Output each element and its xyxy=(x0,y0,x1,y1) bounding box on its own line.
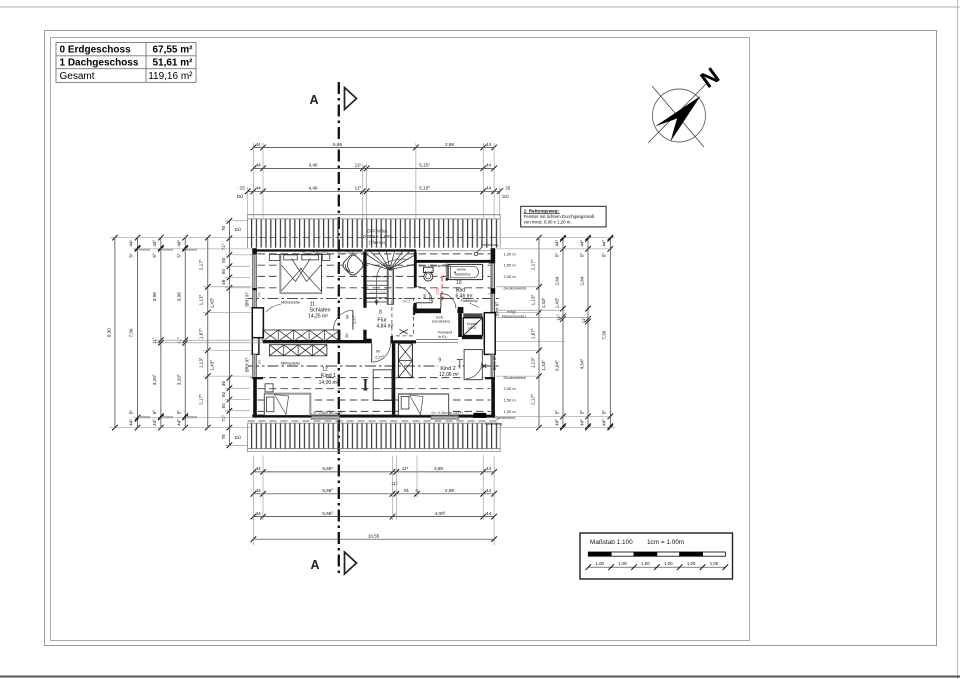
svg-text:44: 44 xyxy=(256,466,262,471)
svg-text:90: 90 xyxy=(376,350,380,354)
svg-text:DÜ: DÜ xyxy=(235,227,241,232)
svg-text:91: 91 xyxy=(404,488,410,493)
svg-text:Vorwand: Vorwand xyxy=(438,331,453,335)
svg-text:Stehhöhe: Stehhöhe xyxy=(454,272,470,276)
svg-text:1,50 m: 1,50 m xyxy=(504,398,517,403)
svg-text:9: 9 xyxy=(438,357,441,363)
svg-text:50: 50 xyxy=(221,403,226,409)
svg-text:A: A xyxy=(309,93,318,107)
svg-text:Maßstab 1:100: Maßstab 1:100 xyxy=(590,539,633,546)
svg-text:44: 44 xyxy=(486,488,492,493)
svg-text:(Thermo): (Thermo) xyxy=(369,240,387,245)
svg-text:Mittelpfette: Mittelpfette xyxy=(281,360,301,365)
svg-text:Fallleitung: Fallleitung xyxy=(481,243,498,247)
svg-text:8,30: 8,30 xyxy=(106,328,111,337)
svg-text:3,89: 3,89 xyxy=(434,466,443,471)
svg-text:Fenster mit lichtem Durchgangs: Fenster mit lichtem Durchgangsmaß xyxy=(524,214,595,219)
svg-text:1cm = 1.00m: 1cm = 1.00m xyxy=(647,539,684,546)
svg-text:50: 50 xyxy=(221,392,226,398)
svg-text:50: 50 xyxy=(221,269,226,275)
svg-text:19/19: 19/19 xyxy=(468,326,477,330)
svg-text:78: 78 xyxy=(221,226,226,232)
svg-text:46: 46 xyxy=(221,279,226,285)
svg-text:44: 44 xyxy=(486,186,492,191)
svg-text:44: 44 xyxy=(256,142,262,147)
svg-text:Gesamt: Gesamt xyxy=(60,71,95,82)
svg-text:8: 8 xyxy=(379,309,382,315)
svg-text:4,40: 4,40 xyxy=(309,186,318,191)
svg-text:2,64: 2,64 xyxy=(554,276,559,285)
svg-text:2,98: 2,98 xyxy=(445,142,454,147)
svg-text:von mind. 0,90 x 1,20 m.: von mind. 0,90 x 1,20 m. xyxy=(524,220,572,225)
svg-text:Kind 1: Kind 1 xyxy=(321,373,336,379)
svg-text:12,06 m²: 12,06 m² xyxy=(439,372,459,378)
svg-text:67,55 m²: 67,55 m² xyxy=(152,45,193,56)
svg-text:44: 44 xyxy=(486,466,492,471)
svg-text:16x17,5/25: 16x17,5/25 xyxy=(370,291,386,295)
svg-text:keine: keine xyxy=(457,268,466,272)
svg-text:50: 50 xyxy=(221,257,226,263)
svg-text:Drm. 1,38m ab OKFF: Drm. 1,38m ab OKFF xyxy=(419,264,451,268)
svg-text:A: A xyxy=(310,558,319,572)
svg-text:7,30: 7,30 xyxy=(129,328,134,337)
svg-text:1,00: 1,00 xyxy=(595,561,604,566)
svg-text:3,98: 3,98 xyxy=(177,292,182,301)
svg-text:1,00: 1,00 xyxy=(687,561,696,566)
svg-text:10: 10 xyxy=(456,280,462,286)
svg-text:2,00 m: 2,00 m xyxy=(504,274,517,279)
svg-text:1,00: 1,00 xyxy=(664,561,673,566)
svg-text:1,00: 1,00 xyxy=(710,561,719,566)
svg-text:2. Rettungsweg:: 2. Rettungsweg: xyxy=(524,208,560,213)
svg-text:3,98: 3,98 xyxy=(152,292,157,301)
svg-text:0,78m x 1,18m: 0,78m x 1,18m xyxy=(363,234,392,239)
svg-text:Deckenknick: Deckenknick xyxy=(504,375,527,380)
svg-text:119,16 m²: 119,16 m² xyxy=(148,71,193,82)
svg-text:in EL.: in EL. xyxy=(438,335,448,339)
svg-text:9x1,2: 9x1,2 xyxy=(403,299,411,303)
svg-text:7,30: 7,30 xyxy=(602,330,607,339)
svg-text:1,00 m: 1,00 m xyxy=(504,409,517,414)
svg-text:4,84 m²: 4,84 m² xyxy=(377,323,394,329)
svg-text:h= -0,36m ab OKRF: h= -0,36m ab OKRF xyxy=(313,411,343,415)
svg-text:h= 2,26m ab OKFF: h= 2,26m ab OKFF xyxy=(302,251,329,255)
svg-text:46: 46 xyxy=(221,381,226,387)
svg-text:- 25: - 25 xyxy=(503,186,511,191)
svg-text:11: 11 xyxy=(310,301,315,307)
svg-text:44: 44 xyxy=(256,511,262,516)
svg-text:2,00: 2,00 xyxy=(436,288,440,295)
svg-text:2,98: 2,98 xyxy=(445,488,454,493)
svg-text:4,40: 4,40 xyxy=(309,163,318,168)
svg-text:14,25 m²: 14,25 m² xyxy=(308,313,328,319)
svg-text:6,69: 6,69 xyxy=(333,142,342,147)
svg-text:1,00: 1,00 xyxy=(618,561,627,566)
svg-text:- 25: - 25 xyxy=(237,186,245,191)
svg-text:44: 44 xyxy=(256,163,262,168)
svg-text:DÜ: DÜ xyxy=(502,194,508,199)
svg-text:44: 44 xyxy=(486,142,492,147)
svg-text:10,55: 10,55 xyxy=(368,534,380,539)
svg-text:Fallleitung: Fallleitung xyxy=(485,422,502,426)
svg-text:h= 2,26m ab OKFF: h= 2,26m ab OKFF xyxy=(337,251,364,255)
svg-text:44: 44 xyxy=(256,488,262,493)
svg-text:44: 44 xyxy=(486,163,492,168)
svg-text:2,64: 2,64 xyxy=(579,276,584,285)
svg-text:1,00 m: 1,00 m xyxy=(504,251,517,256)
svg-text:Fallleitung: Fallleitung xyxy=(461,299,479,303)
svg-text:BRH 97: BRH 97 xyxy=(494,301,499,316)
svg-text:BRH 97: BRH 97 xyxy=(244,357,249,372)
svg-text:DÜ: DÜ xyxy=(235,435,241,440)
svg-text:12: 12 xyxy=(322,366,328,372)
svg-text:(h= -0,36m ab OKFF): (h= -0,36m ab OKFF) xyxy=(432,411,463,415)
svg-text:80: 80 xyxy=(345,334,349,338)
svg-text:Deckenknick: Deckenknick xyxy=(504,285,527,290)
svg-text:51,61 m²: 51,61 m² xyxy=(152,58,193,69)
svg-text:1,00: 1,00 xyxy=(641,561,650,566)
svg-text:44: 44 xyxy=(256,186,262,191)
svg-text:44: 44 xyxy=(486,511,492,516)
svg-text:Möbelzeile: Möbelzeile xyxy=(281,299,301,304)
svg-text:2,00 m: 2,00 m xyxy=(504,386,517,391)
svg-text:DFF Velux: DFF Velux xyxy=(367,228,388,233)
svg-text:1 Dachgeschoss: 1 Dachgeschoss xyxy=(60,58,139,69)
svg-text:90: 90 xyxy=(423,294,427,298)
svg-text:90: 90 xyxy=(346,315,350,319)
svg-text:1,50 m: 1,50 m xyxy=(504,263,517,268)
svg-text:DÜ: DÜ xyxy=(237,194,243,199)
svg-text:BRH 97: BRH 97 xyxy=(492,355,497,370)
svg-text:(verziehen): (verziehen) xyxy=(432,320,450,324)
svg-text:14,00 m²: 14,00 m² xyxy=(319,380,339,386)
svg-text:BRH 97: BRH 97 xyxy=(244,292,249,307)
svg-text:78: 78 xyxy=(221,434,226,440)
svg-text:0 Erdgeschoss: 0 Erdgeschoss xyxy=(60,45,132,56)
